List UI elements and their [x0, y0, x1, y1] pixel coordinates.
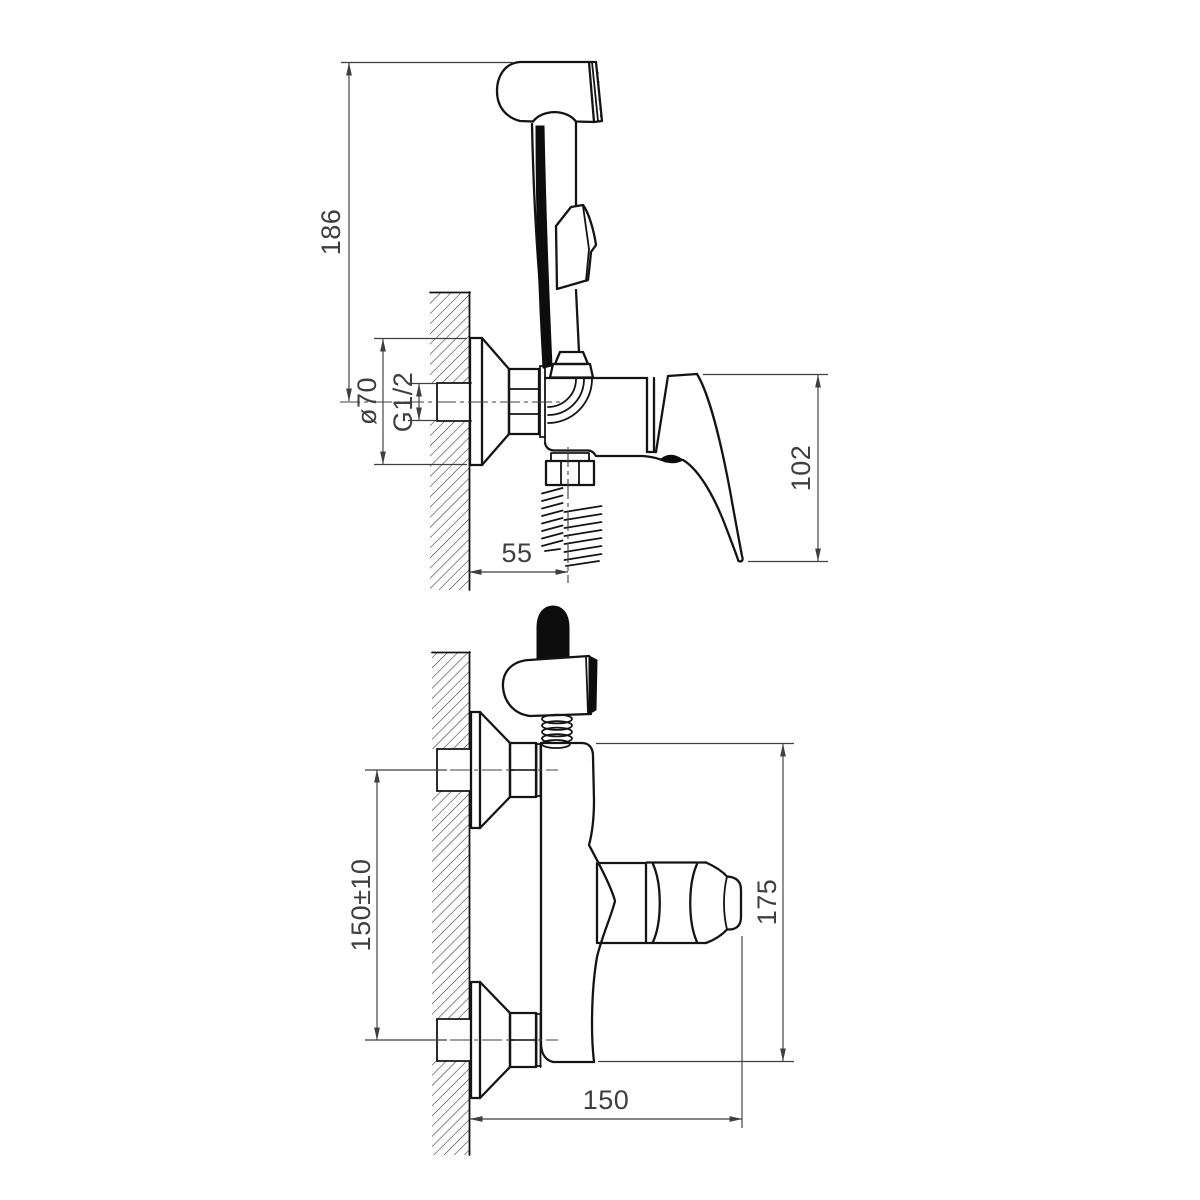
technical-drawing: 186 ø70 G1/2 55 102 [0, 0, 1200, 1200]
drawing-page: 186 ø70 G1/2 55 102 [0, 0, 1200, 1200]
dim-label-projection: 150 [583, 1085, 630, 1115]
dim-label-body-height: 175 [752, 879, 782, 926]
grip-shadow-stripe [536, 126, 552, 368]
side-view: 186 ø70 G1/2 55 102 [316, 62, 828, 590]
front-view: 150±10 175 150 [346, 606, 794, 1155]
thread-lines [542, 488, 602, 566]
shower-holder [503, 606, 597, 748]
dim-handle-height: 102 [703, 375, 828, 562]
handle-cap-front [647, 863, 706, 944]
dim-body-height: 175 [596, 744, 794, 1062]
hose-connector [542, 453, 602, 566]
dim-overall-height: 186 [316, 63, 513, 402]
mixer-body-front [541, 743, 741, 1062]
dim-label-inlet-spacing: 150±10 [346, 859, 376, 952]
mixer-body [545, 378, 666, 462]
dim-label-flange-diameter: ø70 [352, 377, 382, 425]
dim-label-thread: G1/2 [388, 372, 418, 433]
holder-opening [589, 656, 597, 714]
wall-section-front [432, 652, 470, 1155]
shower-grip-right [576, 122, 579, 352]
dim-inlet-spacing: 150±10 [346, 770, 447, 1040]
dim-label-outlet-offset: 55 [501, 538, 532, 568]
dim-label-handle-height: 102 [786, 445, 816, 492]
wall-section [430, 292, 470, 590]
trigger-button [556, 205, 596, 289]
shower-grip-front [537, 606, 569, 659]
elbow-arcs [548, 379, 592, 423]
handle-grip-front [706, 863, 741, 944]
lever-handle [656, 374, 743, 561]
grip-skirt [550, 352, 593, 378]
dim-label-overall-height: 186 [316, 209, 346, 256]
hand-shower [497, 62, 602, 378]
